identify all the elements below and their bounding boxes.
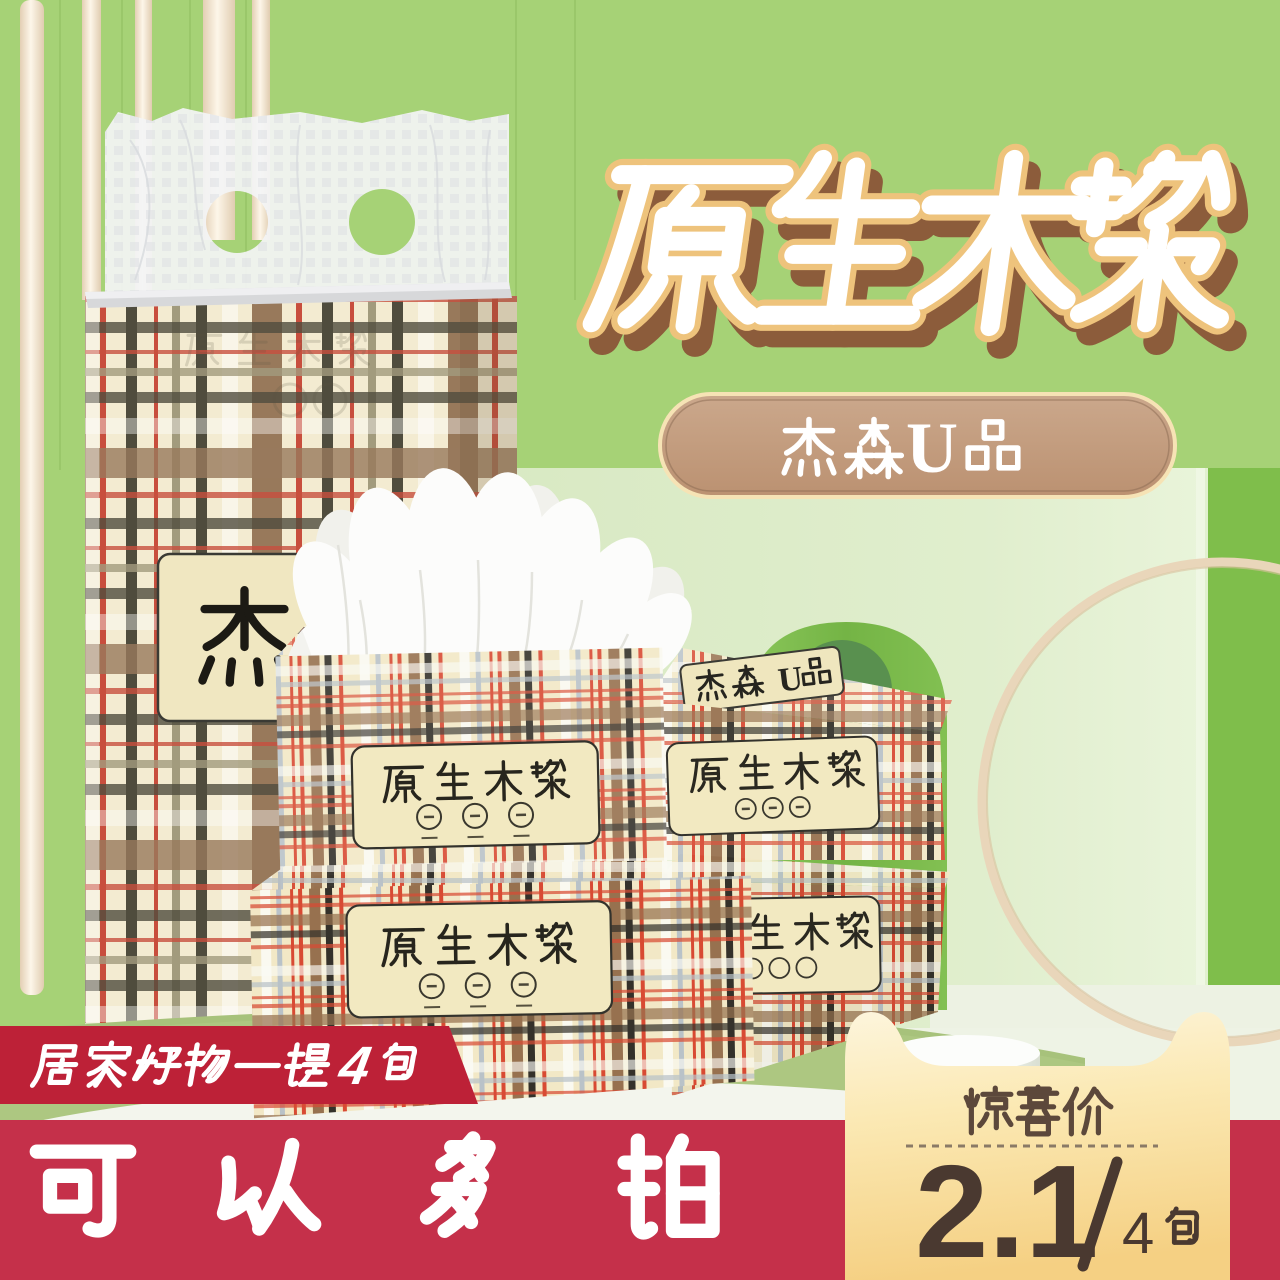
svg-text:U: U [906, 408, 958, 488]
svg-text:2.1: 2.1 [915, 1138, 1099, 1280]
svg-text:U: U [776, 660, 805, 700]
svg-text:4: 4 [1122, 1201, 1154, 1266]
